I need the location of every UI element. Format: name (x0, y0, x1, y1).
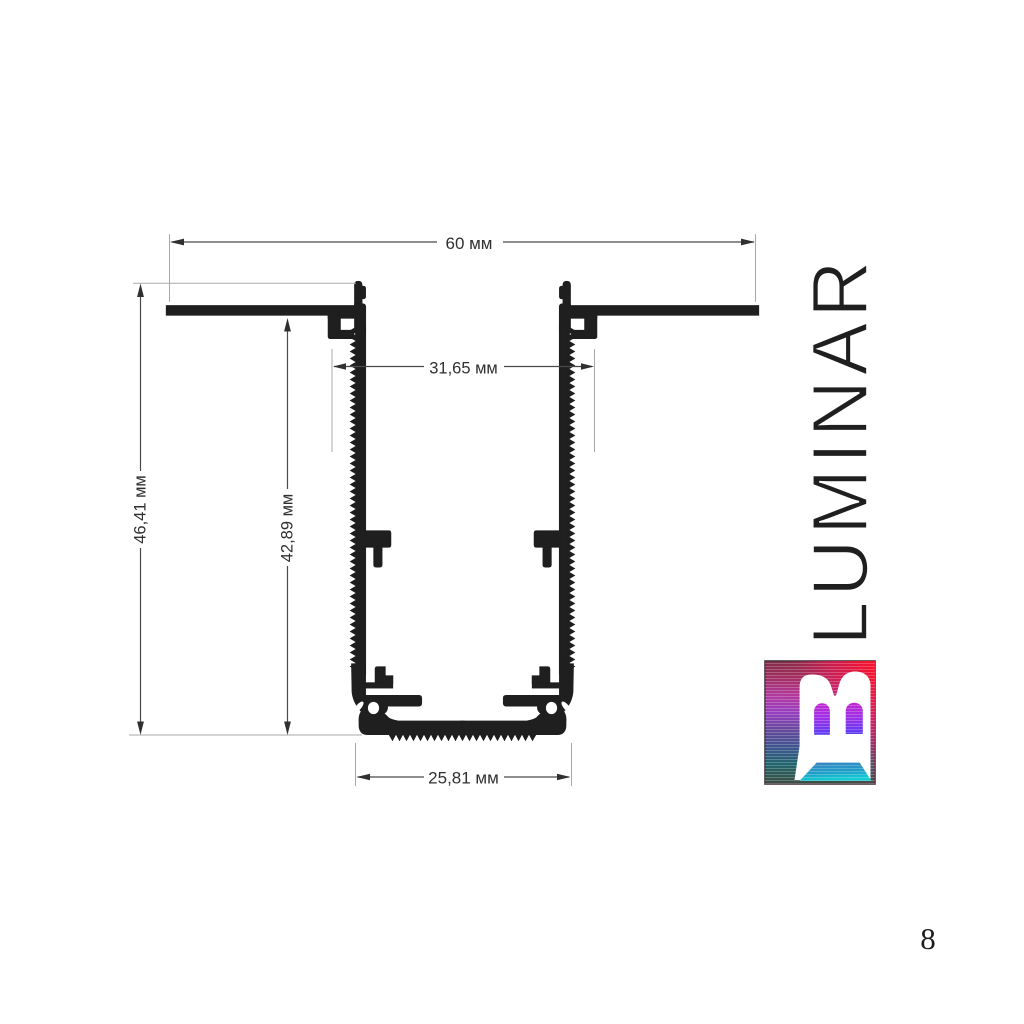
svg-text:60 мм: 60 мм (445, 234, 492, 253)
svg-text:42,89 мм: 42,89 мм (279, 494, 297, 563)
svg-text:25,81 мм: 25,81 мм (428, 769, 499, 788)
svg-text:LUMINAR: LUMINAR (795, 256, 884, 646)
svg-text:8: 8 (920, 921, 936, 956)
svg-text:31,65 мм: 31,65 мм (429, 360, 498, 378)
svg-text:46,41 мм: 46,41 мм (132, 475, 150, 544)
